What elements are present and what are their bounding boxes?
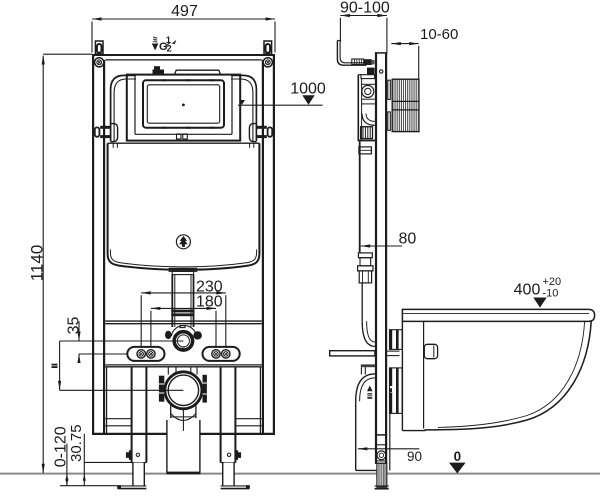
svg-text:1000: 1000 xyxy=(290,81,326,98)
svg-text:2: 2 xyxy=(167,43,172,53)
svg-text:400: 400 xyxy=(514,282,541,299)
svg-text:90-100: 90-100 xyxy=(340,0,390,17)
svg-text:+20: +20 xyxy=(543,276,562,288)
svg-text:10-60: 10-60 xyxy=(420,26,458,43)
svg-text:90: 90 xyxy=(407,449,422,464)
svg-text:497: 497 xyxy=(171,3,198,20)
svg-text:80: 80 xyxy=(399,231,417,248)
svg-text:0: 0 xyxy=(454,449,462,464)
svg-text:30.75: 30.75 xyxy=(68,424,85,462)
